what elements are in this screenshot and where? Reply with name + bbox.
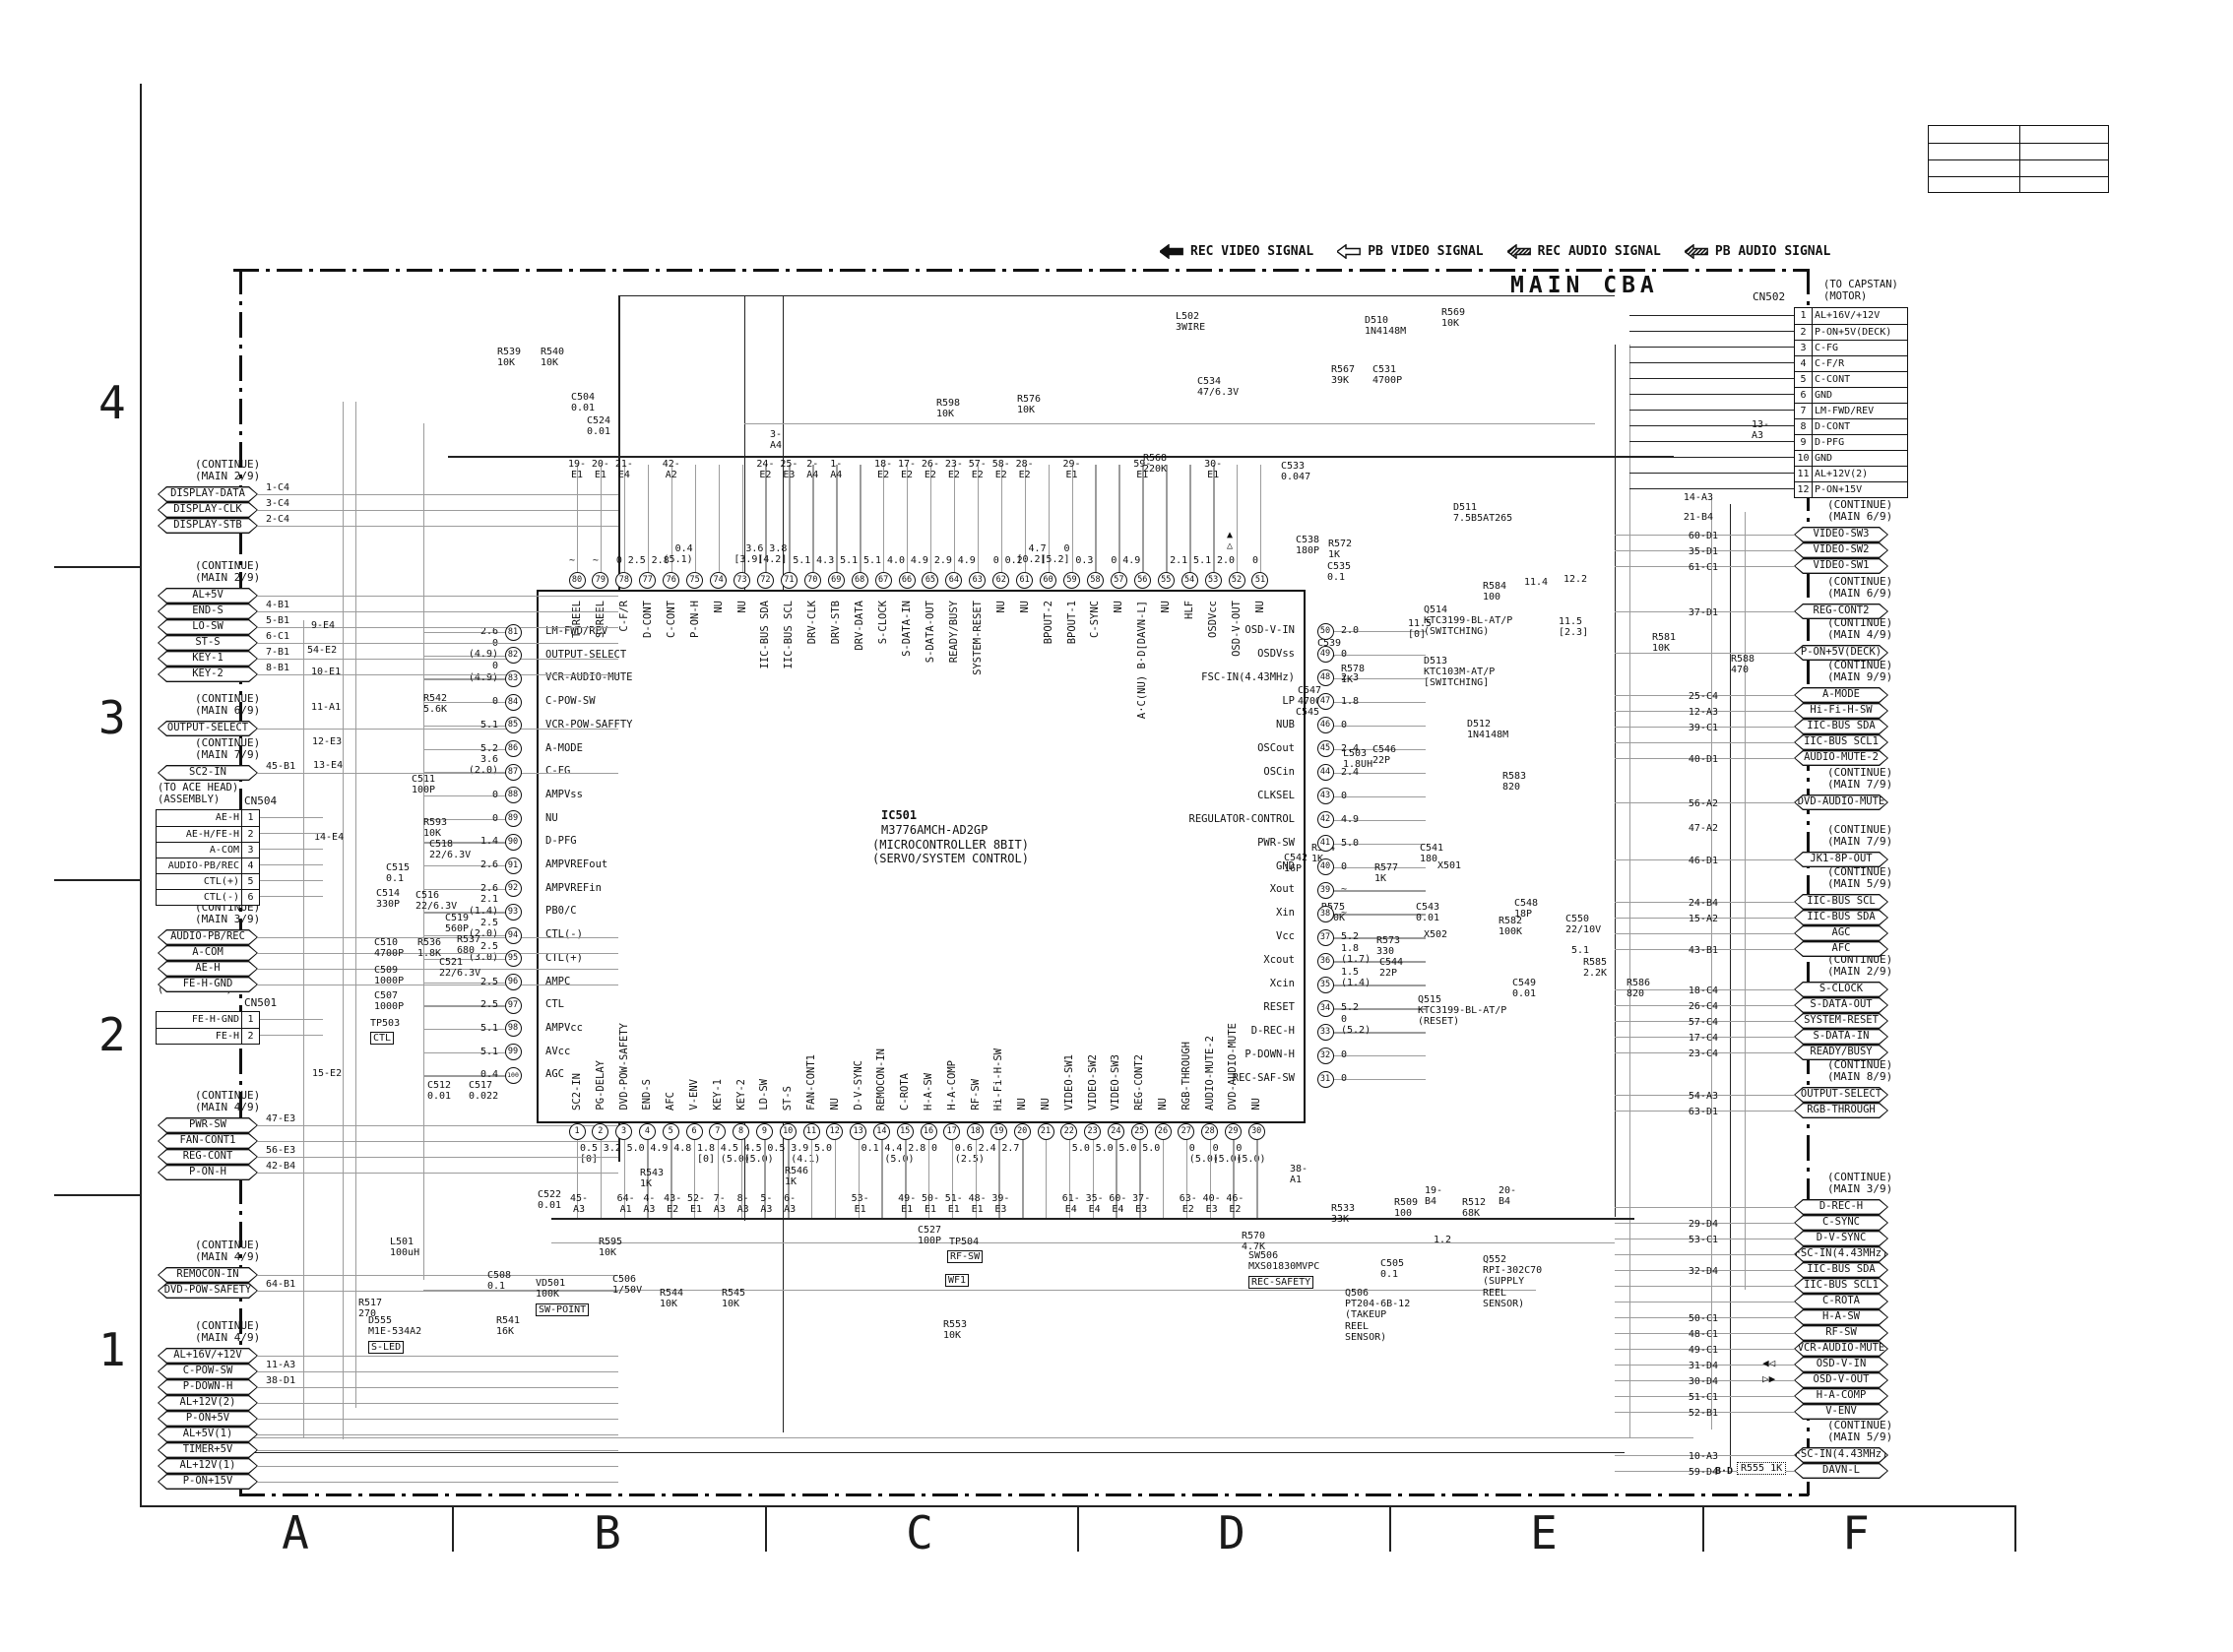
- signal-flag-label: SYSTEM-RESET: [1794, 1013, 1888, 1029]
- connector-pin-name: C-CONT: [1812, 372, 1907, 387]
- signal-flag-label: V-ENV: [1794, 1404, 1888, 1420]
- pin-voltage: 0: [321, 696, 498, 707]
- wire: [1333, 726, 1426, 727]
- component-label: 12.2: [1563, 574, 1587, 585]
- schematic-page: MAIN CBA REC VIDEO SIGNAL PB VIDEO SIGNA…: [0, 0, 2233, 1652]
- component-label-boxed: REC-SAFETY: [1248, 1276, 1313, 1289]
- wire: [258, 1419, 618, 1420]
- wire: [1629, 473, 1794, 474]
- component-label-boxed: WF1: [945, 1274, 969, 1287]
- ic-pin-label: RF-SW: [969, 1079, 983, 1111]
- signal-flag: KEY-1: [158, 651, 258, 667]
- signal-flag-label: VIDEO-SW3: [1794, 527, 1888, 542]
- ic-pin: 47: [1317, 693, 1334, 710]
- ic-pin: 27: [1178, 1123, 1194, 1140]
- ic-pin: 68: [852, 572, 868, 589]
- ic-pin: 71: [781, 572, 797, 589]
- signal-flag-label: READY/BUSY: [1794, 1045, 1888, 1060]
- signal-flag-label: P-DOWN-H: [158, 1379, 258, 1395]
- signal-flag: P-ON+5V(DECK): [1794, 645, 1888, 661]
- pin-voltage: 4.8: [673, 1143, 691, 1154]
- grid-col-label: E: [1455, 1508, 1632, 1559]
- signal-flag-label: VIDEO-SW1: [1794, 558, 1888, 574]
- ic-pin: 5: [663, 1123, 679, 1140]
- wire: [1615, 742, 1794, 743]
- pin-voltage: 2.0: [1341, 625, 1359, 636]
- ic-pin-label: PG-DELAY: [594, 1060, 607, 1111]
- wire: [1260, 465, 1261, 572]
- signal-flag-label: KEY-2: [158, 667, 258, 682]
- signal-flag: DAVN-L: [1794, 1463, 1888, 1479]
- component-label: R586820: [1627, 978, 1650, 999]
- component-label: R5361.8K: [417, 937, 441, 959]
- ic-pin: 44: [1317, 764, 1334, 781]
- signal-flag-label: TIMER+5V: [158, 1442, 258, 1458]
- signal-flag-label: SC2-IN: [158, 765, 258, 781]
- ic-pin: 94: [505, 927, 522, 944]
- connector-pin-row: 10GND: [1795, 450, 1907, 466]
- legend-label: PB VIDEO SIGNAL: [1368, 244, 1483, 259]
- legend-label: PB AUDIO SIGNAL: [1715, 244, 1830, 259]
- signal-flag: ST-S: [158, 635, 258, 651]
- ic-pin: 20: [1014, 1123, 1031, 1140]
- wire: [258, 510, 618, 511]
- continue-note: (CONTINUE)(MAIN 7/9): [1827, 824, 1892, 849]
- signal-flag-label: AFC: [1794, 941, 1888, 957]
- connector-pin-row: 1AL+16V/+12V: [1795, 308, 1907, 324]
- connector-pin-number: 2: [1795, 325, 1813, 340]
- connector-pin-row: 4AUDIO-PB/REC: [157, 858, 259, 873]
- board-boundary: [239, 1493, 1809, 1496]
- component-label: C54422P: [1379, 957, 1403, 979]
- grid-row-label: 1: [98, 1325, 126, 1376]
- component-label: R56910K: [1441, 307, 1465, 329]
- component-label: C5120.01: [427, 1080, 451, 1102]
- ic-pin: 32: [1317, 1048, 1334, 1064]
- connector-pin-row: 12P-ON+15V: [1795, 481, 1907, 497]
- grid-col-label: B: [519, 1508, 696, 1559]
- ic-pin-label: A-MODE: [545, 743, 583, 755]
- ic-pin-label: AMPC: [545, 977, 570, 988]
- connector-pin-number: 4: [241, 858, 259, 873]
- signal-flag-label: IIC-BUS SCL1: [1794, 1278, 1888, 1294]
- wire-grid-ref: 11-A1: [311, 702, 341, 713]
- component-label: SW506MXS01830MVPC: [1248, 1250, 1319, 1272]
- connector-pin-row: 3A-COM: [157, 842, 259, 858]
- pin-voltage: 1.8(1.7): [1341, 943, 1371, 965]
- ic-pin: 60: [1040, 572, 1056, 589]
- board-boundary: [233, 269, 1809, 272]
- ic-pin-label: NU: [735, 601, 749, 613]
- wire: [1629, 347, 1794, 348]
- ic-pin: 17: [943, 1123, 960, 1140]
- continue-note: (CONTINUE)(MAIN 6/9): [195, 693, 260, 718]
- connector-pin-number: 1: [1795, 308, 1813, 324]
- signal-flag-label: DVD-AUDIO-MUTE: [1794, 794, 1888, 810]
- ic-pin-label: AMPVREFin: [545, 883, 602, 895]
- signal-flag: AL+16V/+12V: [158, 1348, 258, 1364]
- ic-pin-label: END-S: [640, 1079, 654, 1111]
- component-label: R582100K: [1499, 916, 1522, 937]
- ic-pin: 83: [505, 670, 522, 687]
- pin-voltage: 0: [1081, 555, 1258, 566]
- wire: [1615, 933, 1794, 934]
- component-label: C5314700P: [1372, 364, 1402, 386]
- ic-pin: 58: [1087, 572, 1104, 589]
- connector-pin-row: 9D-PFG: [1795, 434, 1907, 450]
- signal-flag: P-ON+5V: [158, 1411, 258, 1427]
- wire: [423, 423, 424, 1280]
- pin-voltage: 0(5.0): [1236, 1143, 1265, 1165]
- pin-voltage: 5.2: [1341, 1002, 1359, 1013]
- pin-voltage: 5.1: [321, 1047, 498, 1057]
- ic-pin: 25: [1131, 1123, 1148, 1140]
- ic-pin: 52: [1229, 572, 1245, 589]
- signal-flag: C-SYNC: [1794, 1215, 1888, 1231]
- connector-pin-number: 2: [241, 1029, 259, 1044]
- pin-voltage: 5.2: [1341, 931, 1359, 942]
- continue-note: (CONTINUE)(MAIN 6/9): [1827, 576, 1892, 601]
- ic-pin: 95: [505, 950, 522, 967]
- ic-pin: 31: [1317, 1071, 1334, 1088]
- ic-pin-label: Xin: [1117, 908, 1295, 920]
- wire-grid-ref: 2-C4: [266, 514, 289, 525]
- signal-flag: DISPLAY-CLK: [158, 502, 258, 518]
- component-label: C5080.1: [487, 1270, 511, 1292]
- wire: [258, 596, 618, 597]
- signal-legend: REC VIDEO SIGNAL PB VIDEO SIGNAL REC AUD…: [1160, 244, 1830, 259]
- signal-flag: FSC-IN(4.43MHz): [1794, 1447, 1888, 1463]
- pin-voltage: 0: [1341, 1049, 1347, 1060]
- ic-pin: 37: [1317, 929, 1334, 946]
- signal-flag-label: A-MODE: [1794, 687, 1888, 703]
- wire: [258, 526, 618, 527]
- wire-grid-ref: 12-E3: [312, 736, 342, 747]
- connector-pin-number: 10: [1795, 451, 1813, 466]
- ic-pin-label: C-SYNC: [1088, 601, 1102, 638]
- wire-grid-ref: 47-A2: [1541, 823, 1718, 834]
- ic-pin-label: REMOCON-IN: [874, 1048, 888, 1111]
- ic-pin-label: C-F/R: [617, 601, 631, 632]
- pin-voltage: 4.9: [650, 1143, 668, 1154]
- wire-grid-ref: 54-E2: [307, 645, 337, 656]
- signal-flag-label: FSC-IN(4.43MHz): [1794, 1447, 1888, 1463]
- signal-flag-label: D-REC-H: [1794, 1199, 1888, 1215]
- wire: [1615, 1254, 1794, 1255]
- component-label: D5117.5B5AT265: [1453, 502, 1512, 524]
- signal-direction-arrows: ▷▶: [1762, 1373, 1775, 1385]
- grid-row-label: 3: [98, 693, 126, 744]
- ic-pin: 87: [505, 764, 522, 781]
- connector-CN504: 1AE-H2AE-H/FE-H3A-COM4AUDIO-PB/REC5CTL(+…: [156, 809, 260, 906]
- signal-flag: D-V-SYNC: [1794, 1231, 1888, 1246]
- component-label: C54216P: [1284, 853, 1308, 874]
- ic-pin: 67: [875, 572, 892, 589]
- wire: [258, 611, 618, 612]
- signal-flag: A-COM: [158, 945, 258, 961]
- signal-flag: C-ROTA: [1794, 1294, 1888, 1309]
- pin-voltage: 0.1: [861, 1143, 879, 1154]
- component-label: R584100: [1483, 581, 1506, 603]
- signal-flag: S-DATA-IN: [1794, 1029, 1888, 1045]
- wire: [258, 1434, 618, 1435]
- signal-flag: S-DATA-OUT: [1794, 997, 1888, 1013]
- ic-pin: 93: [505, 904, 522, 921]
- signal-flag-label: P-ON+5V(DECK): [1794, 645, 1888, 661]
- wire: [260, 1035, 323, 1036]
- component-label: R5721K: [1328, 539, 1352, 560]
- wire-grid-ref: 56-E3: [266, 1145, 295, 1156]
- wire: [258, 729, 618, 730]
- ic-pin: 98: [505, 1020, 522, 1037]
- signal-flag: SC2-IN: [158, 765, 258, 781]
- wire-grid-ref: 15-E2: [312, 1068, 342, 1079]
- wire: [260, 1019, 323, 1020]
- signal-flag-label: ST-S: [158, 635, 258, 651]
- ic-pin-label: OSD-V-OUT: [1230, 601, 1244, 657]
- signal-flag-label: OSD-V-IN: [1794, 1357, 1888, 1372]
- ic-pin: 74: [710, 572, 727, 589]
- signal-flag: FSC-IN(4.43MHz): [1794, 1246, 1888, 1262]
- ic-pin: 78: [615, 572, 632, 589]
- ic-pin-label: S-CLOCK: [876, 601, 890, 644]
- connector-pin-row: 5CTL(+): [157, 873, 259, 889]
- wire-grid-ref: 39-C1: [1541, 723, 1718, 733]
- signal-flag-label: S-CLOCK: [1794, 982, 1888, 997]
- signal-flag-label: FE-H-GND: [158, 977, 258, 992]
- component-label: R53910K: [497, 347, 521, 368]
- component-label: C511100P: [412, 774, 435, 795]
- ic-pin: 49: [1317, 646, 1334, 663]
- ic-pin-label: C-ROTA: [898, 1073, 912, 1111]
- ic-pin: 84: [505, 694, 522, 711]
- wire-grid-ref: 3-C4: [266, 498, 289, 509]
- component-label: R51268K: [1462, 1197, 1486, 1219]
- ic-pin: 48: [1317, 669, 1334, 686]
- component-label: 19-B4: [1425, 1185, 1442, 1207]
- wire: [258, 773, 618, 774]
- component-label: C51622/6.3V: [415, 890, 457, 912]
- connector-pin-number: 3: [241, 843, 259, 858]
- pin-voltage: 5.2: [321, 743, 498, 754]
- connector-pin-row: 11AL+12V(2): [1795, 466, 1907, 481]
- connector-CN502: 1AL+16V/+12V2P-ON+5V(DECK)3C-FG4C-F/R5C-…: [1794, 307, 1908, 498]
- ic-pin-label: Hi-Fi-H-SW: [991, 1048, 1005, 1111]
- component-label: ▲△: [1227, 530, 1233, 551]
- component-label: R573330: [1376, 935, 1400, 957]
- ic-pin-label: D-V-SYNC: [852, 1060, 865, 1111]
- signal-flag-label: OSD-V-OUT: [1794, 1372, 1888, 1388]
- ic-pin-label: DVD-AUDIO-MUTE: [1226, 1023, 1240, 1111]
- component-label: R5852.2K: [1583, 957, 1607, 979]
- signal-flag: DVD-POW-SAFETY: [158, 1283, 258, 1299]
- pin-voltage: 4.9: [1341, 814, 1359, 825]
- wire: [54, 566, 140, 568]
- signal-flag: AL+5V(1): [158, 1427, 258, 1442]
- wire-grid-ref: 12-A3: [1541, 707, 1718, 718]
- component-label: C5091000P: [374, 965, 404, 986]
- connector-pin-name: FE-H-GND: [157, 1012, 242, 1028]
- legend-item: PB VIDEO SIGNAL: [1337, 244, 1483, 259]
- ic-pin-label: FAN-CONT1: [804, 1054, 818, 1111]
- wire: [258, 985, 618, 985]
- wire: [246, 1437, 1693, 1438]
- ic-pin: 40: [1317, 858, 1334, 875]
- signal-flag-label: DISPLAY-CLK: [158, 502, 258, 518]
- wire-grid-ref: 7-B1: [266, 647, 289, 658]
- signal-flag-label: S-DATA-OUT: [1794, 997, 1888, 1013]
- connector-pin-row: 1FE-H-GND: [157, 1012, 259, 1028]
- ic-pin-label: CTL(+): [545, 953, 583, 965]
- signal-flag-label: AGC: [1794, 925, 1888, 941]
- ic-pin: 39: [1317, 882, 1334, 899]
- signal-flag-label: AUDIO-MUTE-2: [1794, 750, 1888, 766]
- ic-pin-label: DRV-DATA: [853, 601, 866, 651]
- wire: [744, 423, 1595, 424]
- component-label: B·D: [1715, 1466, 1733, 1477]
- ic-pin-label: AFC: [664, 1092, 677, 1111]
- ic-pin: 46: [1317, 717, 1334, 733]
- continue-note: (CONTINUE)(MAIN 9/9): [1827, 660, 1892, 684]
- ic-pin-label: SYSTEM-RESET: [971, 601, 985, 675]
- signal-flag: PWR-SW: [158, 1117, 258, 1133]
- signal-flag: H-A-SW: [1794, 1309, 1888, 1325]
- wire-grid-ref: 42-B4: [266, 1161, 295, 1172]
- component-label: C5040.01: [571, 392, 595, 413]
- component-label: 1.2: [1434, 1235, 1451, 1245]
- wire-grid-ref: 48-C1: [1541, 1329, 1718, 1340]
- signal-flag-label: OUTPUT-SELECT: [158, 721, 258, 736]
- signal-flag-label: AL+12V(1): [158, 1458, 258, 1474]
- signal-flag-label: OUTPUT-SELECT: [1794, 1087, 1888, 1103]
- wire: [1629, 457, 1794, 458]
- ic-pin: 77: [639, 572, 656, 589]
- ic-pin-label: NU: [1159, 601, 1173, 613]
- signal-flag-label: LO-SW: [158, 619, 258, 635]
- signal-flag-label: Hi-Fi-H-SW: [1794, 703, 1888, 719]
- signal-flag-label: REG-CONT: [158, 1149, 258, 1165]
- signal-flag: REG-CONT2: [1794, 604, 1888, 619]
- ic-pin-label: V-ENV: [687, 1079, 701, 1111]
- ic-pin: 55: [1158, 572, 1175, 589]
- signal-flag-label: IIC-BUS SDA: [1794, 910, 1888, 925]
- component-label: R568220K: [1143, 453, 1167, 475]
- ic-pin: 18: [967, 1123, 984, 1140]
- ic-pin: 7: [709, 1123, 726, 1140]
- connector-pin-name: CTL(+): [157, 874, 242, 889]
- wire-grid-ref: 5-B1: [266, 615, 289, 626]
- signal-flag-label: P-ON+5V: [158, 1411, 258, 1427]
- component-label: 20-B4: [1499, 1185, 1516, 1207]
- ic-pin: 11: [803, 1123, 820, 1140]
- legend-label: REC VIDEO SIGNAL: [1190, 244, 1313, 259]
- ic-pin-label: Xout: [1117, 884, 1295, 896]
- ic-pin: 63: [969, 572, 986, 589]
- ic-pin-label: DRV-CLK: [805, 601, 819, 644]
- signal-flag-label: P-ON+15V: [158, 1474, 258, 1490]
- wire: [1615, 653, 1794, 654]
- signal-flag: A-MODE: [1794, 687, 1888, 703]
- ic-pin: 29: [1225, 1123, 1242, 1140]
- signal-flag: AL+5V: [158, 588, 258, 604]
- signal-flag-label: DISPLAY-STB: [158, 518, 258, 534]
- signal-flag: OSD-V-OUT: [1794, 1372, 1888, 1388]
- continue-note: (CONTINUE)(MAIN 4/9): [195, 1320, 260, 1345]
- wire: [1615, 1302, 1794, 1303]
- wire: [258, 494, 618, 495]
- component-label: R54410K: [660, 1288, 683, 1309]
- signal-flag: REG-CONT: [158, 1149, 258, 1165]
- ic-pin: 36: [1317, 953, 1334, 970]
- component-label: C5220.01: [538, 1189, 561, 1211]
- signal-flag: C-POW-SW: [158, 1364, 258, 1379]
- ic-pin-label: OSCout: [1117, 743, 1295, 755]
- grid-row-label: 2: [98, 1010, 126, 1061]
- signal-direction-arrows: ◀◁: [1762, 1358, 1775, 1369]
- ic-pin: 33: [1317, 1024, 1334, 1041]
- wire: [2014, 1505, 2016, 1552]
- pin-voltage: 5.0: [1118, 1143, 1136, 1154]
- ic-pin-label: T-REEL: [570, 601, 584, 638]
- ic-pin-label: GND: [1117, 861, 1295, 873]
- signal-flag: Hi-Fi-H-SW: [1794, 703, 1888, 719]
- ic-pin-label: P-ON-H: [688, 601, 702, 638]
- ic-pin: 9: [756, 1123, 773, 1140]
- ic-pin: 35: [1317, 977, 1334, 993]
- connector-pin-name: A-COM: [157, 843, 242, 858]
- ic-pin-label: Xcin: [1117, 979, 1295, 990]
- ic-pin-label: NUB: [1117, 720, 1295, 731]
- signal-flag-label: KEY-1: [158, 651, 258, 667]
- component-label: R5461K: [785, 1166, 808, 1187]
- wire: [1615, 345, 1616, 1217]
- ic-pin: 41: [1317, 835, 1334, 852]
- connector-pin-row: 2AE-H/FE-H: [157, 826, 259, 842]
- component-label: R59810K: [936, 398, 960, 419]
- ic-pin: 99: [505, 1044, 522, 1060]
- component-label: R54116K: [496, 1315, 520, 1337]
- component-label: C519560P: [445, 913, 469, 934]
- wire-grid-ref: 9-E4: [311, 620, 335, 631]
- component-label: X502: [1424, 929, 1447, 940]
- component-label: 11.4: [1524, 577, 1548, 588]
- pin-voltage: 2.5: [321, 999, 498, 1010]
- ic-pin-label: BPOUT-2: [1042, 601, 1055, 644]
- connector-pin-name: AUDIO-PB/REC: [157, 858, 242, 873]
- ic-pin: 30: [1248, 1123, 1265, 1140]
- connector-pin-name: P-ON+5V(DECK): [1812, 325, 1907, 340]
- component-label: C5150.1: [386, 862, 410, 884]
- connector-pin-row: 2FE-H: [157, 1028, 259, 1044]
- ic-pin-label: NU: [994, 601, 1008, 613]
- grid-row-label: 4: [98, 378, 126, 429]
- ic-pin-label: BPOUT-1: [1065, 601, 1079, 644]
- wire: [1629, 331, 1794, 332]
- wire-grid-ref: 32-D4: [1541, 1266, 1718, 1277]
- pin-voltage: 0: [1341, 861, 1347, 872]
- component-label: D513KTC103M-AT/P[SWITCHING]: [1424, 656, 1495, 689]
- wire: [1333, 1055, 1426, 1056]
- signal-flag-label: AUDIO-PB/REC: [158, 929, 258, 945]
- component-label: R59310K: [423, 817, 447, 839]
- ic-pin: 56: [1134, 572, 1151, 589]
- ic-pin: 1: [569, 1123, 586, 1140]
- wire-grid-ref: 35-D1: [1541, 546, 1718, 557]
- ic-pin: 100: [505, 1067, 522, 1084]
- component-label: C54622P: [1372, 744, 1396, 766]
- pin-voltage: 5.0: [1072, 1143, 1090, 1154]
- ic-pin-label: VIDEO-SW1: [1062, 1054, 1076, 1111]
